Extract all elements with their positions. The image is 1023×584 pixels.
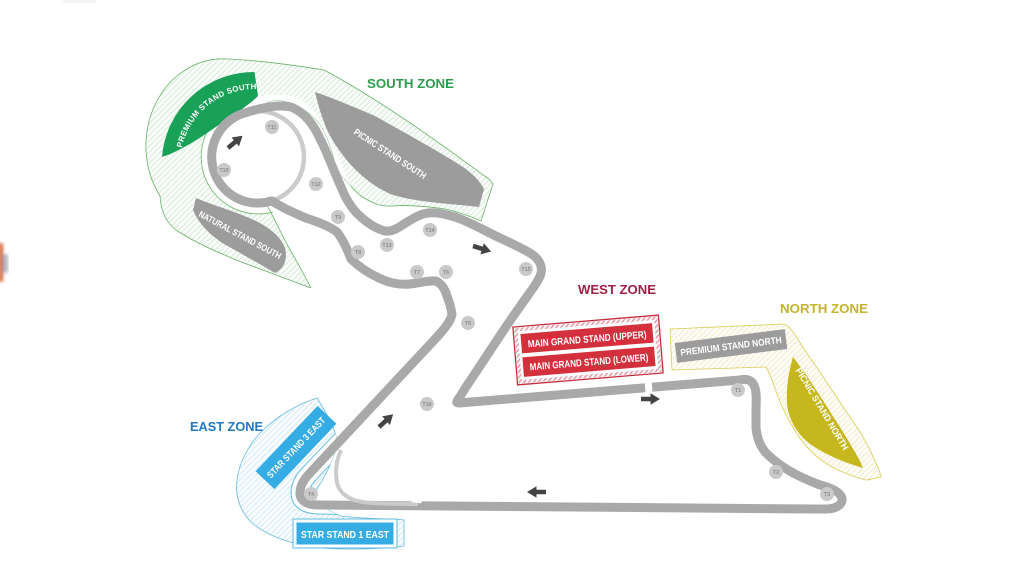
- svg-text:T6: T6: [443, 270, 449, 276]
- svg-text:STAR STAND 1 EAST: STAR STAND 1 EAST: [301, 529, 389, 541]
- svg-text:T15: T15: [521, 267, 530, 273]
- svg-text:T9: T9: [335, 215, 341, 221]
- svg-text:T13: T13: [382, 243, 391, 249]
- svg-text:T16: T16: [422, 402, 431, 408]
- svg-text:T10: T10: [219, 168, 228, 174]
- svg-text:EAST ZONE: EAST ZONE: [190, 419, 263, 434]
- svg-text:T5: T5: [465, 321, 471, 327]
- svg-text:WEST ZONE: WEST ZONE: [578, 282, 656, 297]
- svg-text:T7: T7: [414, 270, 420, 276]
- svg-text:T11: T11: [268, 125, 277, 131]
- svg-text:T1: T1: [735, 388, 741, 394]
- svg-text:T12: T12: [311, 182, 320, 188]
- svg-text:T2: T2: [773, 470, 779, 476]
- svg-text:T3: T3: [824, 492, 830, 498]
- svg-text:T14: T14: [425, 228, 434, 234]
- svg-text:SOUTH ZONE: SOUTH ZONE: [367, 76, 454, 91]
- svg-text:NORTH ZONE: NORTH ZONE: [780, 301, 868, 316]
- svg-text:T8: T8: [355, 250, 361, 256]
- svg-text:T4: T4: [308, 492, 314, 498]
